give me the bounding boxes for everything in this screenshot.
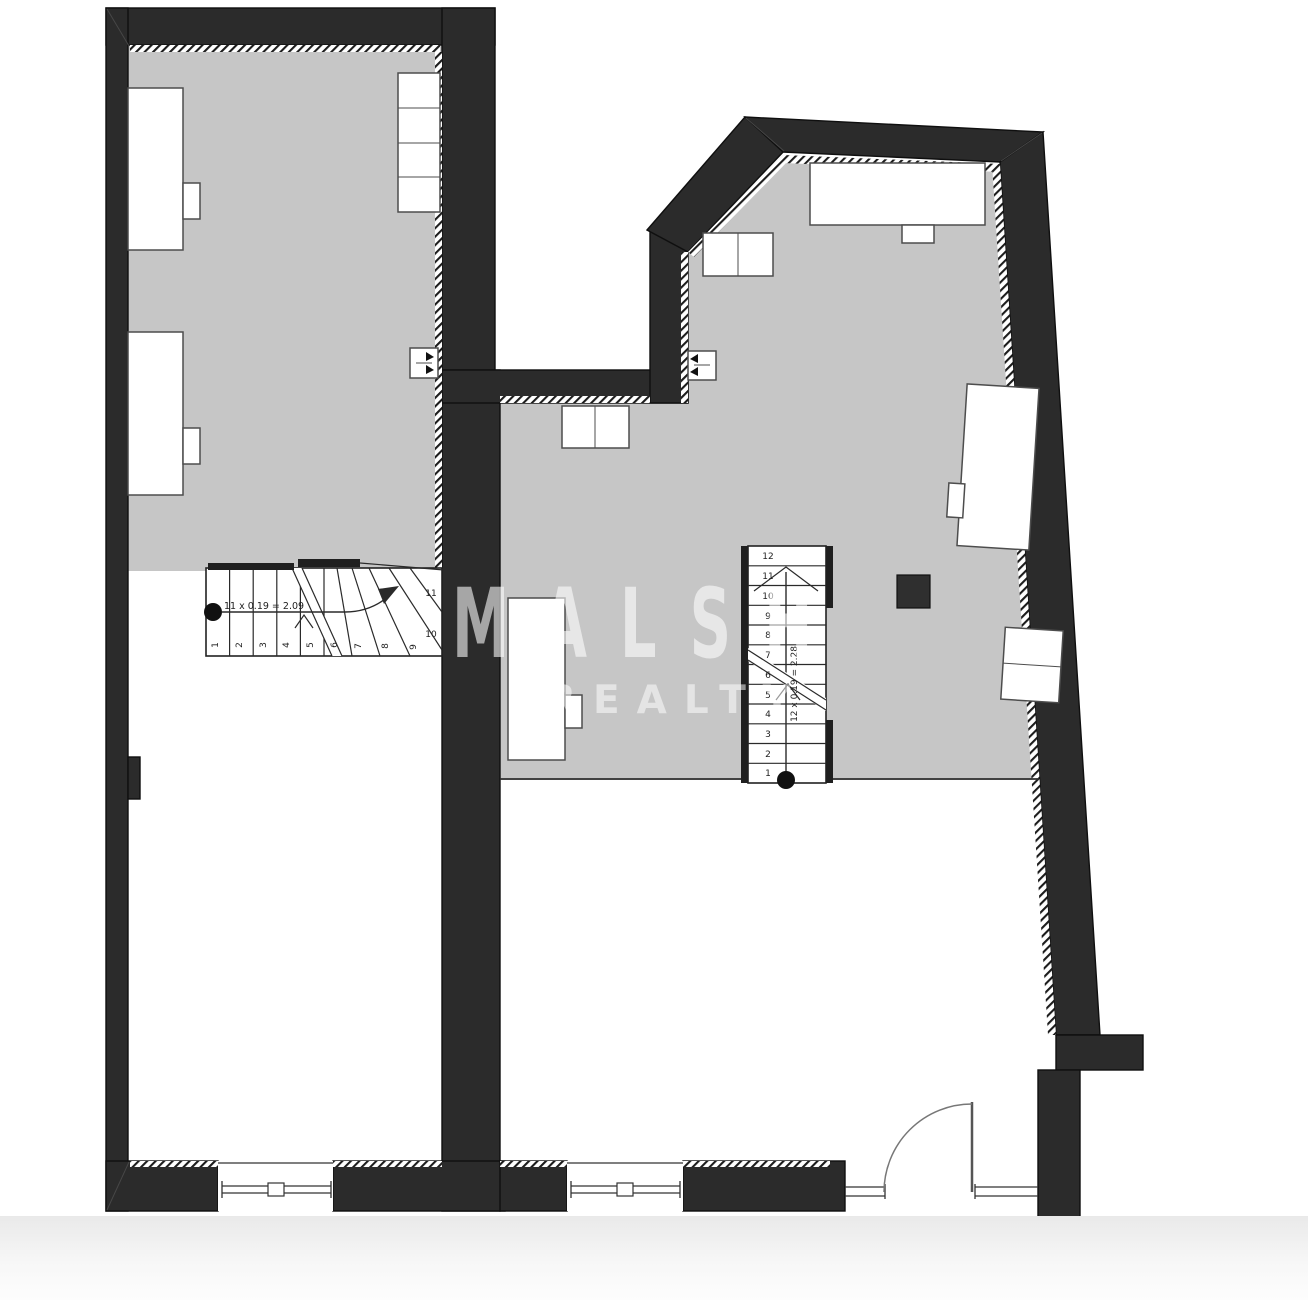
step-number: 11: [425, 589, 436, 599]
window-icon: [567, 1161, 683, 1211]
step-number: 9: [409, 644, 419, 650]
window-icon: [218, 1161, 333, 1211]
step-number: 10: [425, 630, 437, 640]
bed: [810, 163, 985, 225]
nightstand: [902, 225, 934, 243]
wall-right-unit-top: [745, 117, 1043, 162]
nightstand: [183, 428, 200, 464]
staircase-left: 11 x 0.19 = 2.09 1 2 3 4 5 6 7 8 9 10 11: [204, 559, 444, 656]
start-dot: [204, 603, 222, 621]
chair: [947, 483, 965, 518]
start-dot: [777, 771, 795, 789]
step-number: 3: [259, 642, 269, 648]
wall-left-unit-left: [106, 8, 128, 1211]
step-number: 6: [330, 642, 340, 648]
floor-plan: 11 x 0.19 = 2.09 1 2 3 4 5 6 7 8 9 10 11: [0, 0, 1308, 1300]
bed: [128, 88, 183, 250]
wall-right-step: [1056, 1035, 1143, 1070]
stove: [897, 575, 930, 608]
step-number: 2: [235, 642, 245, 648]
radiator-icon: [410, 348, 438, 378]
nightstand: [183, 183, 200, 219]
step-number: 10: [762, 592, 774, 602]
step-number: 6: [765, 671, 771, 681]
step-number: 7: [354, 643, 364, 649]
step-number: 8: [765, 631, 771, 641]
stair-annotation: 12 x 0.19 = 2.28: [790, 646, 800, 722]
radiator-icon: [688, 351, 716, 380]
step-number: 5: [306, 642, 316, 648]
cabinet: [1001, 627, 1063, 702]
wall-left-protrusion: [128, 757, 140, 799]
bottom-fade: [0, 1216, 1308, 1300]
bed: [508, 598, 565, 760]
bed: [128, 332, 183, 495]
cabinet: [703, 233, 773, 276]
step-number: 7: [765, 651, 771, 661]
step-number: 5: [765, 691, 771, 701]
wall-bottom-left-b: [333, 1161, 505, 1211]
step-number: 2: [765, 750, 771, 760]
wardrobe: [398, 73, 440, 212]
wall-bottom-left-a: [106, 1161, 218, 1211]
floor-plan-drawing: 11 x 0.19 = 2.09 1 2 3 4 5 6 7 8 9 10 11: [0, 0, 1308, 1300]
staircase-right: 12 x 0.19 = 2.28 1 2 3 4 5 6 7 8 9 10 11…: [741, 546, 833, 789]
step-number: 1: [211, 642, 221, 648]
step-number: 1: [765, 769, 771, 779]
step-number: 4: [765, 710, 771, 720]
step-number: 8: [381, 643, 391, 649]
wall-left-unit-right: [442, 8, 495, 403]
door-arc: [884, 1104, 972, 1192]
stair-annotation: 11 x 0.19 = 2.09: [224, 601, 304, 612]
wall-right-lower: [1038, 1070, 1080, 1218]
cabinet: [562, 406, 629, 448]
step-number: 3: [765, 730, 771, 740]
wall-bottom-right-b: [683, 1161, 845, 1211]
wall-left-unit-top: [106, 8, 495, 45]
door-swing-icon: [845, 1102, 1038, 1199]
wall-bottom-right-a: [500, 1161, 567, 1211]
wall-party: [442, 370, 500, 1211]
step-number: 9: [765, 612, 771, 622]
step-number: 12: [762, 552, 773, 562]
step-number: 4: [282, 642, 292, 648]
nightstand: [565, 695, 582, 728]
step-number: 11: [762, 572, 773, 582]
